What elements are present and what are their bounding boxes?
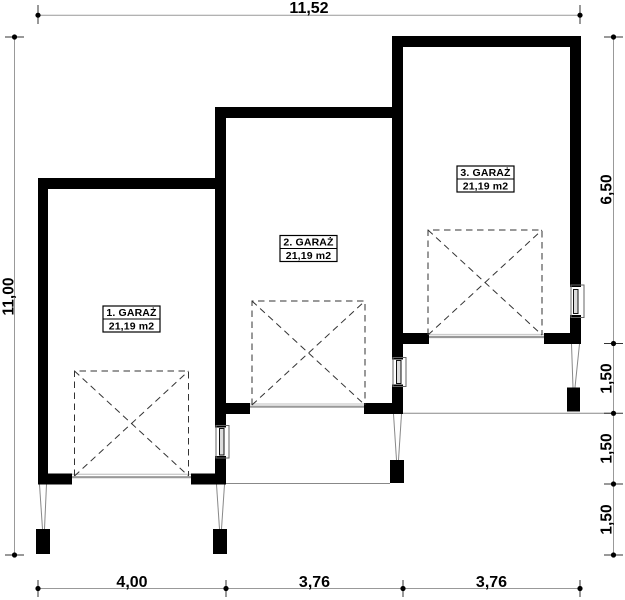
svg-text:21,19 m2: 21,19 m2: [286, 250, 332, 262]
svg-text:1,50: 1,50: [599, 504, 616, 534]
svg-text:1,50: 1,50: [599, 433, 616, 463]
svg-text:21,19 m2: 21,19 m2: [463, 181, 509, 193]
svg-text:6,50: 6,50: [599, 174, 616, 204]
svg-text:11,52: 11,52: [289, 0, 328, 17]
svg-text:2. GARAŻ: 2. GARAŻ: [283, 236, 334, 249]
svg-text:4,00: 4,00: [116, 574, 147, 591]
svg-text:3. GARAŻ: 3. GARAŻ: [460, 166, 511, 179]
svg-text:3,76: 3,76: [476, 574, 507, 591]
svg-text:1. GARAŻ: 1. GARAŻ: [106, 306, 157, 319]
svg-text:3,76: 3,76: [299, 574, 330, 591]
svg-text:21,19 m2: 21,19 m2: [109, 321, 155, 333]
svg-text:1,50: 1,50: [599, 363, 616, 393]
svg-text:11,00: 11,00: [0, 278, 17, 316]
